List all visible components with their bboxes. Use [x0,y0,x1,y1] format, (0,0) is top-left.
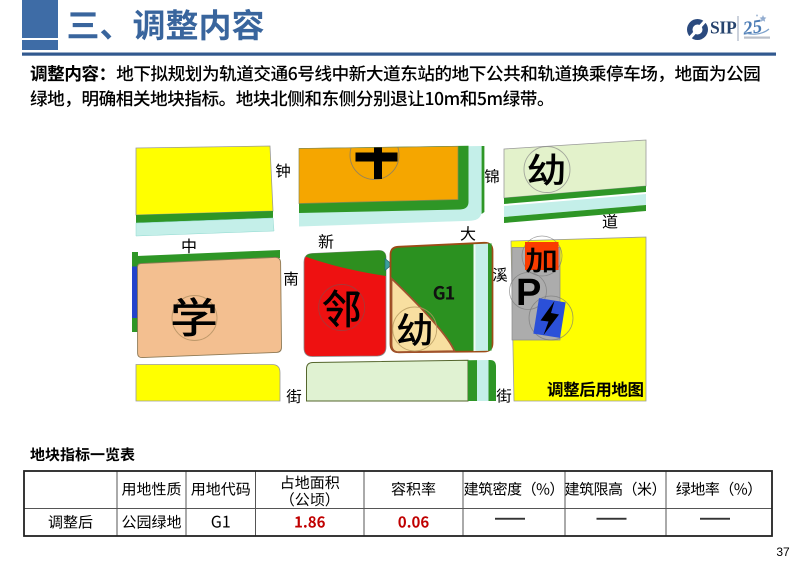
svg-text:SIP: SIP [710,18,737,38]
svg-text:37: 37 [776,545,790,559]
svg-text:25: 25 [741,16,764,40]
